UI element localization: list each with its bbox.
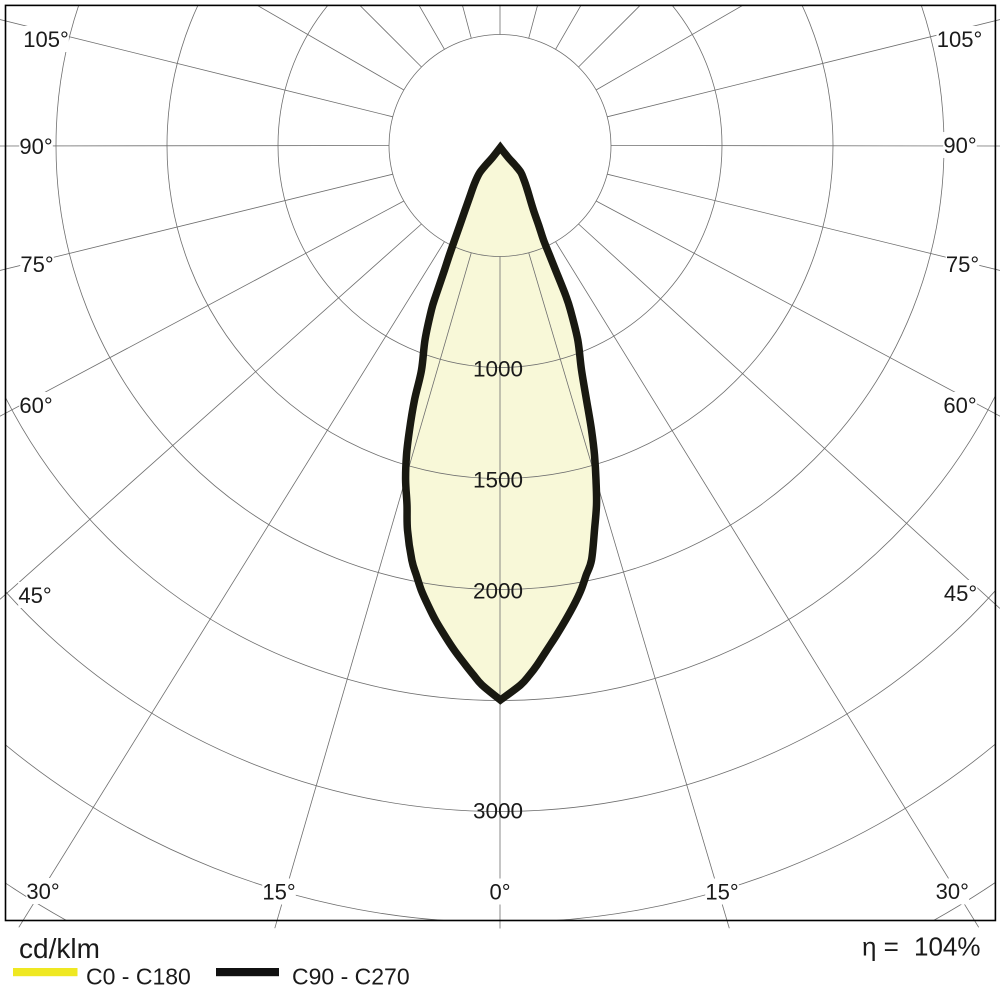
svg-text:η =: η = [862, 932, 899, 962]
svg-text:60°: 60° [943, 393, 976, 418]
svg-text:3000: 3000 [473, 799, 523, 824]
svg-text:30°: 30° [936, 879, 969, 904]
svg-text:45°: 45° [944, 581, 977, 606]
svg-text:C90 - C270: C90 - C270 [292, 964, 410, 990]
svg-text:2000: 2000 [473, 578, 523, 603]
svg-text:90°: 90° [19, 134, 52, 159]
svg-text:15°: 15° [262, 879, 295, 904]
svg-text:30°: 30° [26, 879, 59, 904]
svg-text:60°: 60° [19, 393, 52, 418]
svg-text:1000: 1000 [473, 356, 523, 381]
svg-text:1500: 1500 [473, 467, 523, 492]
svg-text:75°: 75° [946, 252, 979, 277]
svg-text:0°: 0° [489, 879, 510, 904]
svg-text:15°: 15° [705, 879, 738, 904]
svg-text:90°: 90° [943, 133, 976, 158]
svg-text:105°: 105° [23, 27, 69, 52]
svg-text:75°: 75° [20, 252, 53, 277]
svg-text:104%: 104% [914, 932, 981, 962]
svg-text:C0 - C180: C0 - C180 [86, 964, 191, 990]
svg-text:cd/klm: cd/klm [19, 933, 100, 964]
svg-text:105°: 105° [937, 27, 983, 52]
svg-text:45°: 45° [18, 583, 51, 608]
